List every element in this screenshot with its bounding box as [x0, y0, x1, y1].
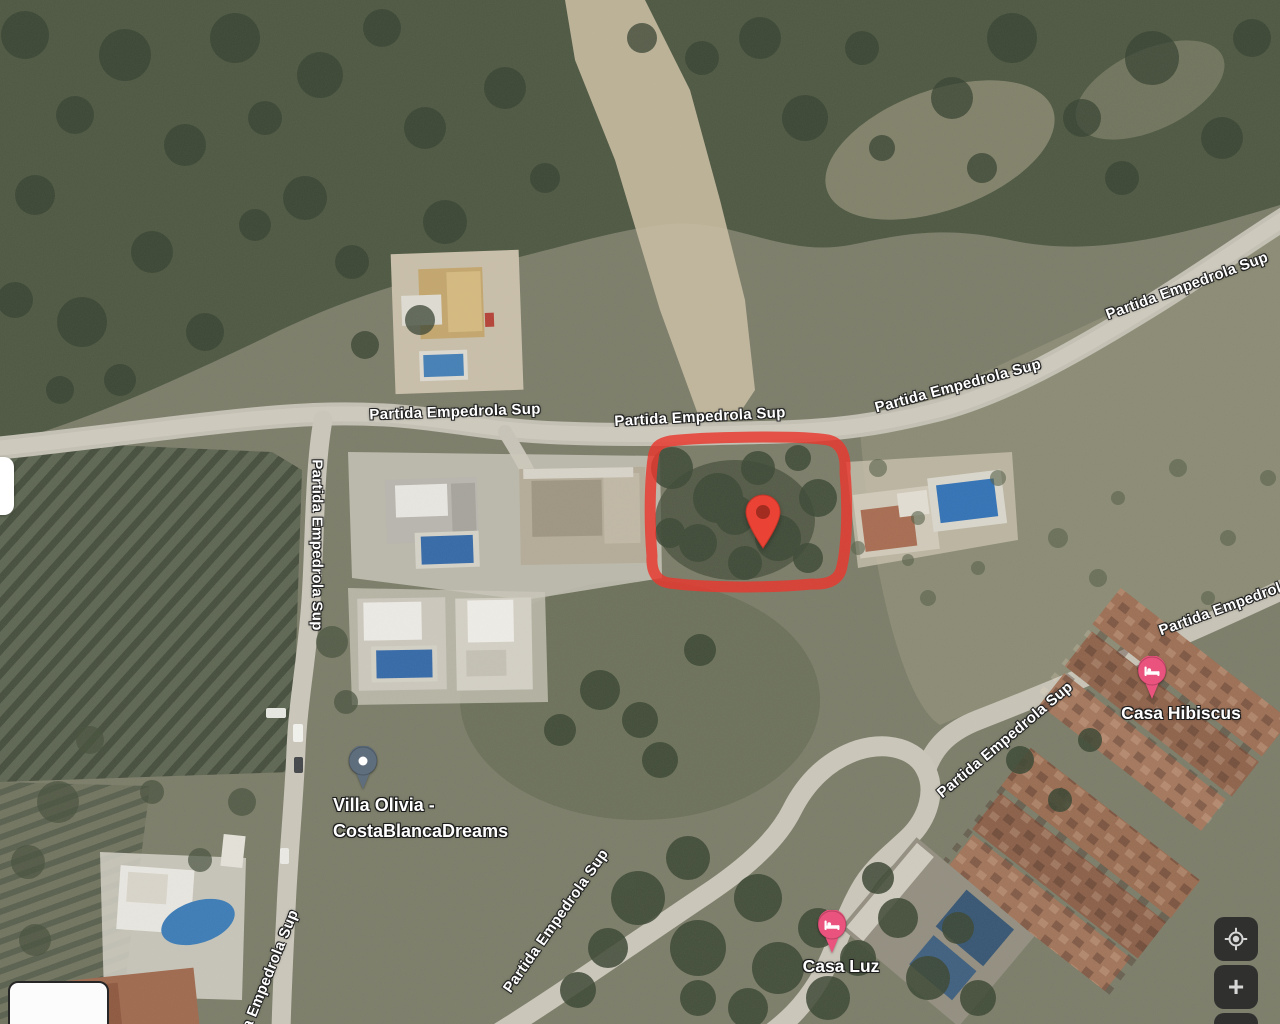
place-label-line: CostaBlancaDreams: [333, 818, 508, 844]
place-label-line: Villa Olivia -: [333, 792, 508, 818]
satellite-map[interactable]: Partida Empedrola Sup Partida Empedrola …: [0, 0, 1280, 1024]
zoom-in-button[interactable]: +: [1214, 965, 1258, 1009]
selected-location-marker[interactable]: [744, 494, 782, 555]
poi-pin-icon[interactable]: [347, 746, 379, 795]
satellite-imagery: [0, 0, 1280, 1024]
place-label-casa-hibiscus[interactable]: Casa Hibiscus: [1121, 700, 1241, 726]
place-label-line: Casa Hibiscus: [1121, 700, 1241, 726]
place-label-casa-luz[interactable]: Casa Luz: [803, 953, 880, 979]
my-location-button[interactable]: [1214, 917, 1258, 961]
my-location-icon: [1224, 927, 1248, 951]
plus-icon: +: [1228, 973, 1244, 1001]
zoom-out-button[interactable]: −: [1214, 1013, 1258, 1024]
corner-card-partial: [8, 981, 109, 1024]
edge-card-partial: [0, 457, 14, 515]
lodging-pin-icon[interactable]: [816, 910, 848, 959]
place-label-villa-olivia[interactable]: Villa Olivia - CostaBlancaDreams: [333, 792, 508, 844]
place-label-line: Casa Luz: [803, 953, 880, 979]
lodging-pin-icon[interactable]: [1136, 656, 1168, 705]
